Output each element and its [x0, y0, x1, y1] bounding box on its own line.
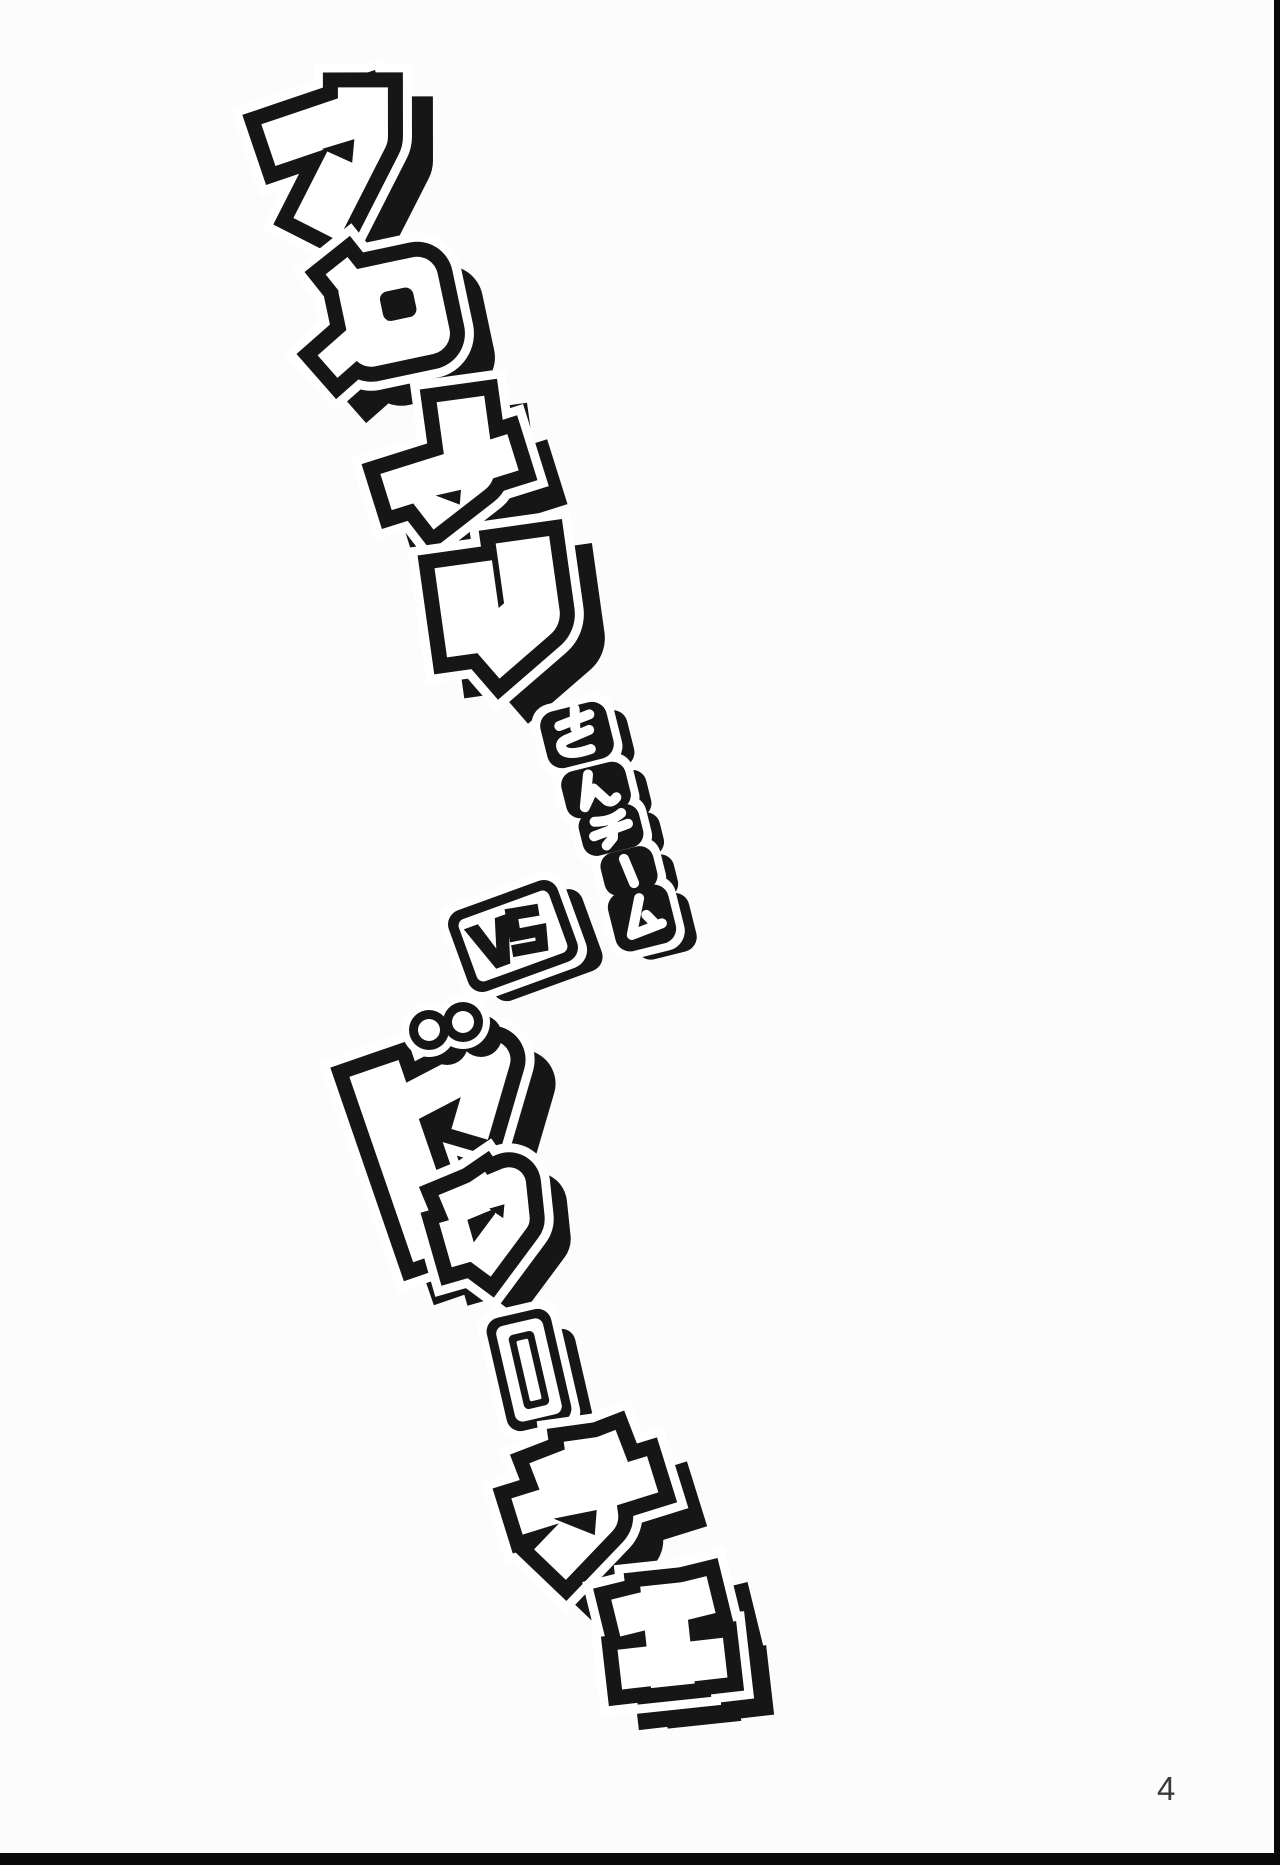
svg-text:4: 4: [1157, 1770, 1175, 1807]
